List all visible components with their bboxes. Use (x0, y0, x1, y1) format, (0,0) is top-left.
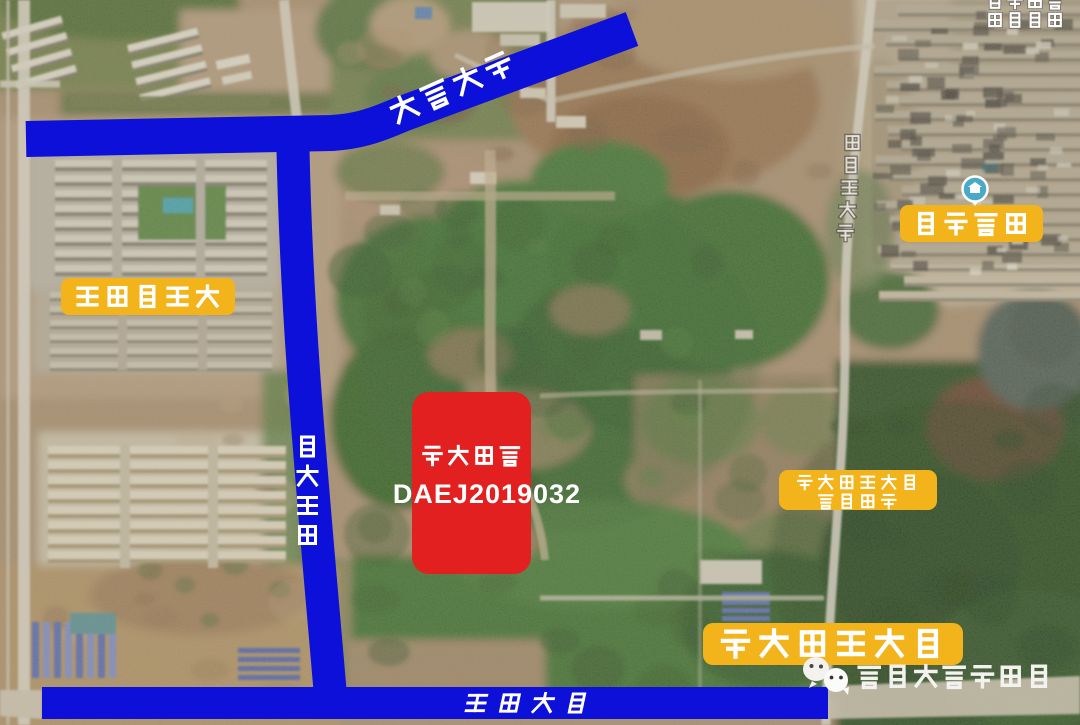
svg-text:DAEJ2019032: DAEJ2019032 (393, 479, 581, 509)
